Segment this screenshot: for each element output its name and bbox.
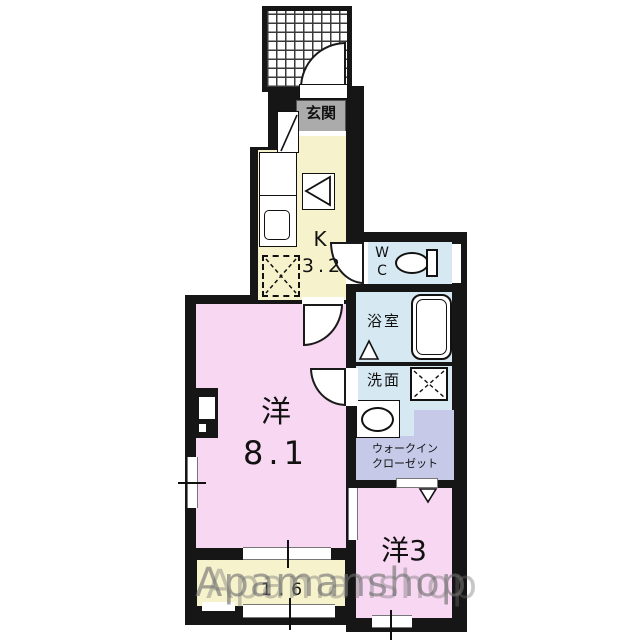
entrance-door-leaf xyxy=(299,84,348,99)
wc-label: WC xyxy=(370,244,394,280)
genkan-label: 玄関 xyxy=(296,105,346,122)
washroom-label: 洗面 xyxy=(358,372,410,389)
small-room-bottom-window xyxy=(372,615,412,628)
wc-window xyxy=(452,244,461,283)
toilet-tank-icon xyxy=(426,249,438,277)
bathroom-label: 浴室 xyxy=(358,313,410,330)
bathtub-icon xyxy=(411,294,452,360)
wash-basin-icon xyxy=(356,400,400,438)
dimension-tick xyxy=(287,540,289,568)
main-room-size-label: 8.1 xyxy=(226,436,326,471)
balcony-size-label: 1.6 xyxy=(248,581,322,600)
kitchen-size-label: 3.2 xyxy=(294,256,352,277)
stove-icon xyxy=(302,173,335,210)
floor-plan: 玄関 K 3.2 WC 浴室 洗面 xyxy=(0,0,640,640)
bath-door-icon xyxy=(358,338,380,362)
main-room-type-label: 洋 xyxy=(240,396,312,429)
small-room-left-window xyxy=(348,488,358,540)
dimension-tick xyxy=(289,598,291,630)
closet-label: ウォークインクローゼット xyxy=(356,441,454,471)
dimension-tick xyxy=(178,482,206,484)
dimension-tick xyxy=(390,610,392,640)
balcony-step xyxy=(202,602,235,611)
genkan-threshold xyxy=(296,131,346,136)
washroom-door-opening xyxy=(344,368,358,406)
pillar-niche-small xyxy=(199,424,206,432)
closet-floor xyxy=(414,410,454,438)
kitchen-type-label: K xyxy=(302,228,338,250)
washing-machine-icon xyxy=(410,367,448,401)
closet-door-arrow-icon xyxy=(418,487,438,504)
kitchen-counter-icon xyxy=(259,152,297,247)
pillar-niche xyxy=(199,397,215,419)
toilet-icon xyxy=(395,252,429,274)
small-room-label: 洋3 xyxy=(360,536,448,567)
